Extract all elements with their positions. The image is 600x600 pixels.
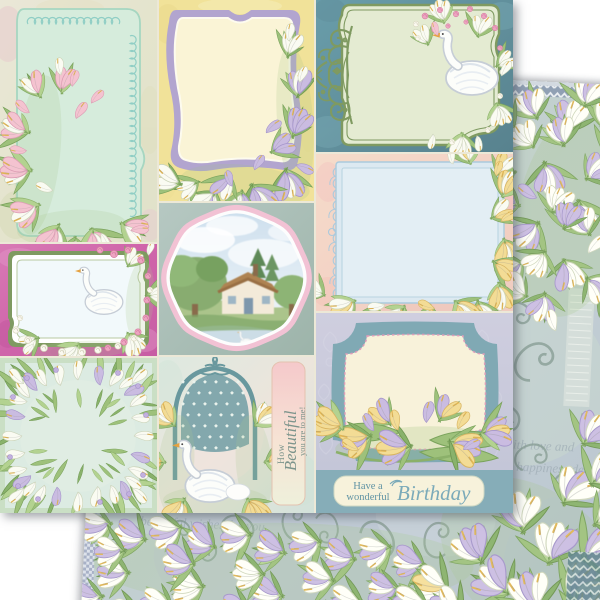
svg-text:Have a: Have a [353, 481, 383, 492]
svg-text:Birthday: Birthday [397, 481, 471, 505]
svg-text:wonderful: wonderful [346, 492, 389, 503]
svg-text:you are to me!: you are to me! [297, 407, 307, 456]
